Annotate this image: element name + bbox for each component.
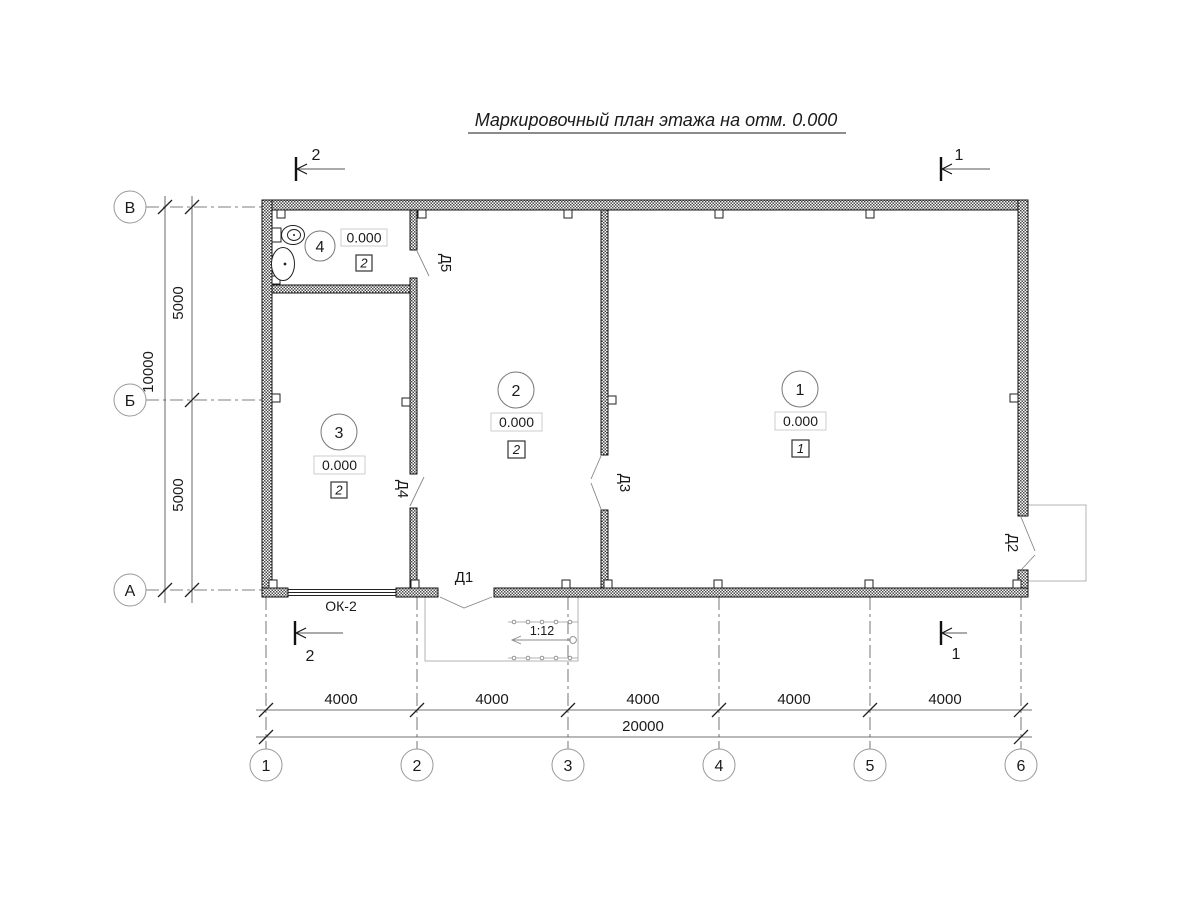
axis-col-2: 2: [413, 758, 422, 775]
section-2-bottom-label: 2: [306, 648, 315, 665]
door-d5-label: Д5: [437, 254, 454, 273]
room-4-annotation: 4 0.000 2: [305, 229, 387, 271]
wall-top: [262, 200, 1028, 210]
room-1-elevation: 0.000: [783, 413, 818, 429]
porch-outline: [425, 597, 578, 661]
drawing-title: Маркировочный план этажа на отм. 0.000: [468, 110, 846, 133]
door-d5-swing: [417, 251, 429, 276]
wall-toilet: [272, 285, 412, 293]
wc-tank-icon: [272, 228, 281, 242]
axis-col-6: 6: [1017, 758, 1026, 775]
walls: [262, 200, 1028, 597]
wall-bottom-main: [494, 588, 1028, 597]
dim-4000-1: 4000: [324, 691, 357, 708]
room-3-annotation: 3 0.000 2: [314, 414, 365, 498]
dim-5000-upper: 5000: [170, 286, 187, 319]
bottom-dimensions: 4000 4000 4000 4000 4000 20000: [256, 691, 1032, 744]
dim-4000-4: 4000: [777, 691, 810, 708]
sink-fixture: [272, 248, 295, 281]
dim-4000-5: 4000: [928, 691, 961, 708]
room-2-annotation: 2 0.000 2: [491, 372, 542, 458]
wc-drain-dot: [293, 234, 295, 236]
page-title: Маркировочный план этажа на отм. 0.000: [475, 110, 838, 130]
side-porch-outline: [1028, 505, 1086, 581]
door-d4-swing: [410, 477, 424, 506]
room-3-number: 3: [335, 425, 344, 442]
section-1-top-label: 1: [955, 147, 964, 164]
room-2-number: 2: [512, 383, 521, 400]
ramp-slope-label: 1:12: [530, 624, 554, 638]
window-ok2-label: ОК-2: [325, 598, 357, 614]
axis-row-b: Б: [125, 393, 136, 410]
plan-svg: Маркировочный план этажа на отм. 0.000 1…: [0, 0, 1200, 900]
door-d3-swing: [591, 456, 601, 509]
dim-5000-lower: 5000: [170, 478, 187, 511]
room-2-elevation: 0.000: [499, 414, 534, 430]
wall-bottom-mid-stub: [396, 588, 438, 597]
room-1-number: 1: [796, 382, 805, 399]
section-mark-top-right: 1: [941, 147, 990, 181]
pilasters: [269, 210, 1021, 588]
room-4-number: 4: [316, 239, 325, 256]
wall-a-lower: [410, 508, 417, 588]
left-dimensions: 5000 5000 10000: [140, 196, 199, 603]
section-mark-top-left: 2: [296, 147, 345, 181]
window-ok2: [288, 590, 396, 596]
dim-4000-2: 4000: [475, 691, 508, 708]
sink-basin-icon: [272, 248, 295, 281]
toilet-fixture: [272, 226, 305, 245]
wall-b-upper: [601, 210, 608, 455]
wall-b-lower: [601, 510, 608, 588]
room-4-type: 2: [359, 256, 368, 271]
door-d4-label: Д4: [394, 480, 411, 499]
axis-col-3: 3: [564, 758, 573, 775]
room-1-annotation: 1 0.000 1: [775, 371, 826, 457]
axis-col-4: 4: [715, 758, 724, 775]
door-d1-swing: [440, 597, 492, 608]
door-d2-label: Д2: [1004, 534, 1021, 553]
wall-left: [262, 200, 272, 597]
section-mark-bottom-left: 2: [295, 621, 343, 665]
door-d1-label: Д1: [455, 569, 474, 586]
sink-drain-dot: [284, 263, 287, 266]
dim-20000-total: 20000: [622, 718, 664, 735]
wall-right-upper: [1018, 200, 1028, 516]
axis-col-5: 5: [866, 758, 875, 775]
door-d2-swing: [1021, 517, 1035, 570]
wall-a-mid: [410, 278, 417, 474]
floor-plan-drawing: Маркировочный план этажа на отм. 0.000 1…: [0, 0, 1200, 900]
entrance-porch: 1:12: [425, 597, 578, 661]
dim-10000-total: 10000: [140, 351, 157, 393]
axis-col-1: 1: [262, 758, 271, 775]
room-1-type: 1: [797, 441, 804, 456]
section-mark-bottom-right: 1: [941, 621, 967, 663]
door-d3-label: Д3: [616, 474, 633, 493]
section-marks: 2 1 2 1: [295, 147, 990, 665]
axis-row-a: А: [125, 583, 136, 600]
room-3-elevation: 0.000: [322, 457, 357, 473]
wall-bottom-left-stub: [262, 588, 288, 597]
side-porch: [1028, 505, 1086, 581]
dim-4000-3: 4000: [626, 691, 659, 708]
room-2-type: 2: [512, 442, 521, 457]
opening-labels: Д1 Д2 Д3 Д4 Д5 ОК-2: [325, 254, 1021, 614]
axis-row-v: В: [125, 200, 136, 217]
section-2-top-label: 2: [312, 147, 321, 164]
room-3-type: 2: [334, 483, 343, 498]
room-4-elevation: 0.000: [346, 230, 381, 246]
section-1-bottom-label: 1: [952, 646, 961, 663]
wall-a-upper: [410, 210, 417, 250]
axis-bubbles: В Б А 1 2 3 4 5 6: [114, 191, 1037, 781]
